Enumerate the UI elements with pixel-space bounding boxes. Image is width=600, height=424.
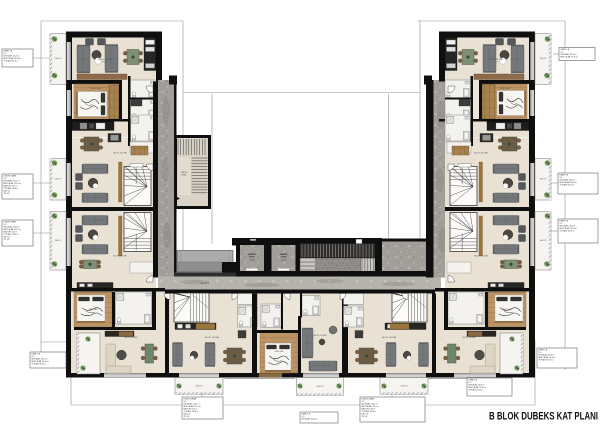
- svg-text:BALKON: BALKON: [317, 385, 325, 388]
- svg-text:TOPLAM: 86.10 m²: TOPLAM: 86.10 m²: [560, 183, 575, 186]
- svg-text:TOPLAM: 86.10 m²: TOPLAM: 86.10 m²: [539, 358, 554, 361]
- svg-text:TİP: B2: TİP: B2: [184, 415, 190, 418]
- svg-text:TOPLAM: 86.10 m²: TOPLAM: 86.10 m²: [32, 362, 47, 365]
- svg-text:B BLOK DUBEKS KAT PLANI: B BLOK DUBEKS KAT PLANI: [489, 411, 598, 423]
- svg-text:TİP: B2: TİP: B2: [362, 415, 368, 418]
- svg-text:TİP: B2: TİP: B2: [4, 238, 10, 241]
- svg-text:BALKON: BALKON: [196, 385, 204, 388]
- svg-text:1.60x1.80: 1.60x1.80: [281, 259, 287, 261]
- svg-text:TOPLAM: 86.10 m²: TOPLAM: 86.10 m²: [4, 59, 19, 62]
- svg-text:MERD.: MERD.: [181, 175, 187, 177]
- svg-text:KAT HOLÜ: KAT HOLÜ: [201, 282, 210, 285]
- svg-text:TOPLAM: 86.10 m²: TOPLAM: 86.10 m²: [560, 229, 575, 232]
- svg-text:1.60x1.80: 1.60x1.80: [249, 259, 255, 261]
- svg-text:TOPLAM: 86.10 m²: TOPLAM: 86.10 m²: [469, 388, 484, 391]
- svg-text:TİP: B2: TİP: B2: [4, 192, 10, 195]
- svg-text:BRÜT ALAN: 78.40 m²: BRÜT ALAN: 78.40 m²: [561, 55, 579, 58]
- svg-text:NET ALAN: 64.25 m²: NET ALAN: 64.25 m²: [302, 417, 319, 420]
- svg-text:SALON + MUTFAK: SALON + MUTFAK: [205, 336, 220, 339]
- svg-text:BALKON: BALKON: [401, 385, 409, 388]
- svg-text:SALON + MUTFAK: SALON + MUTFAK: [382, 336, 397, 339]
